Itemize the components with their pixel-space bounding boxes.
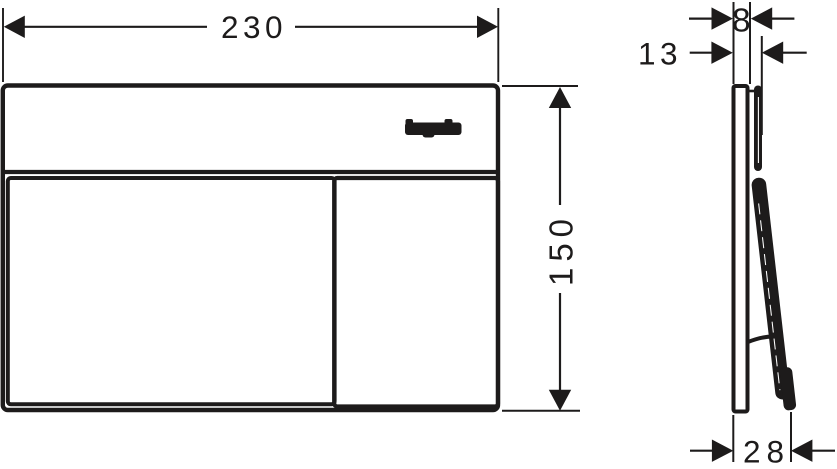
svg-text:13: 13	[638, 36, 682, 72]
svg-text:8: 8	[732, 3, 751, 40]
svg-text:150: 150	[542, 213, 579, 286]
svg-text:28: 28	[743, 434, 790, 469]
svg-text:230: 230	[221, 9, 287, 45]
